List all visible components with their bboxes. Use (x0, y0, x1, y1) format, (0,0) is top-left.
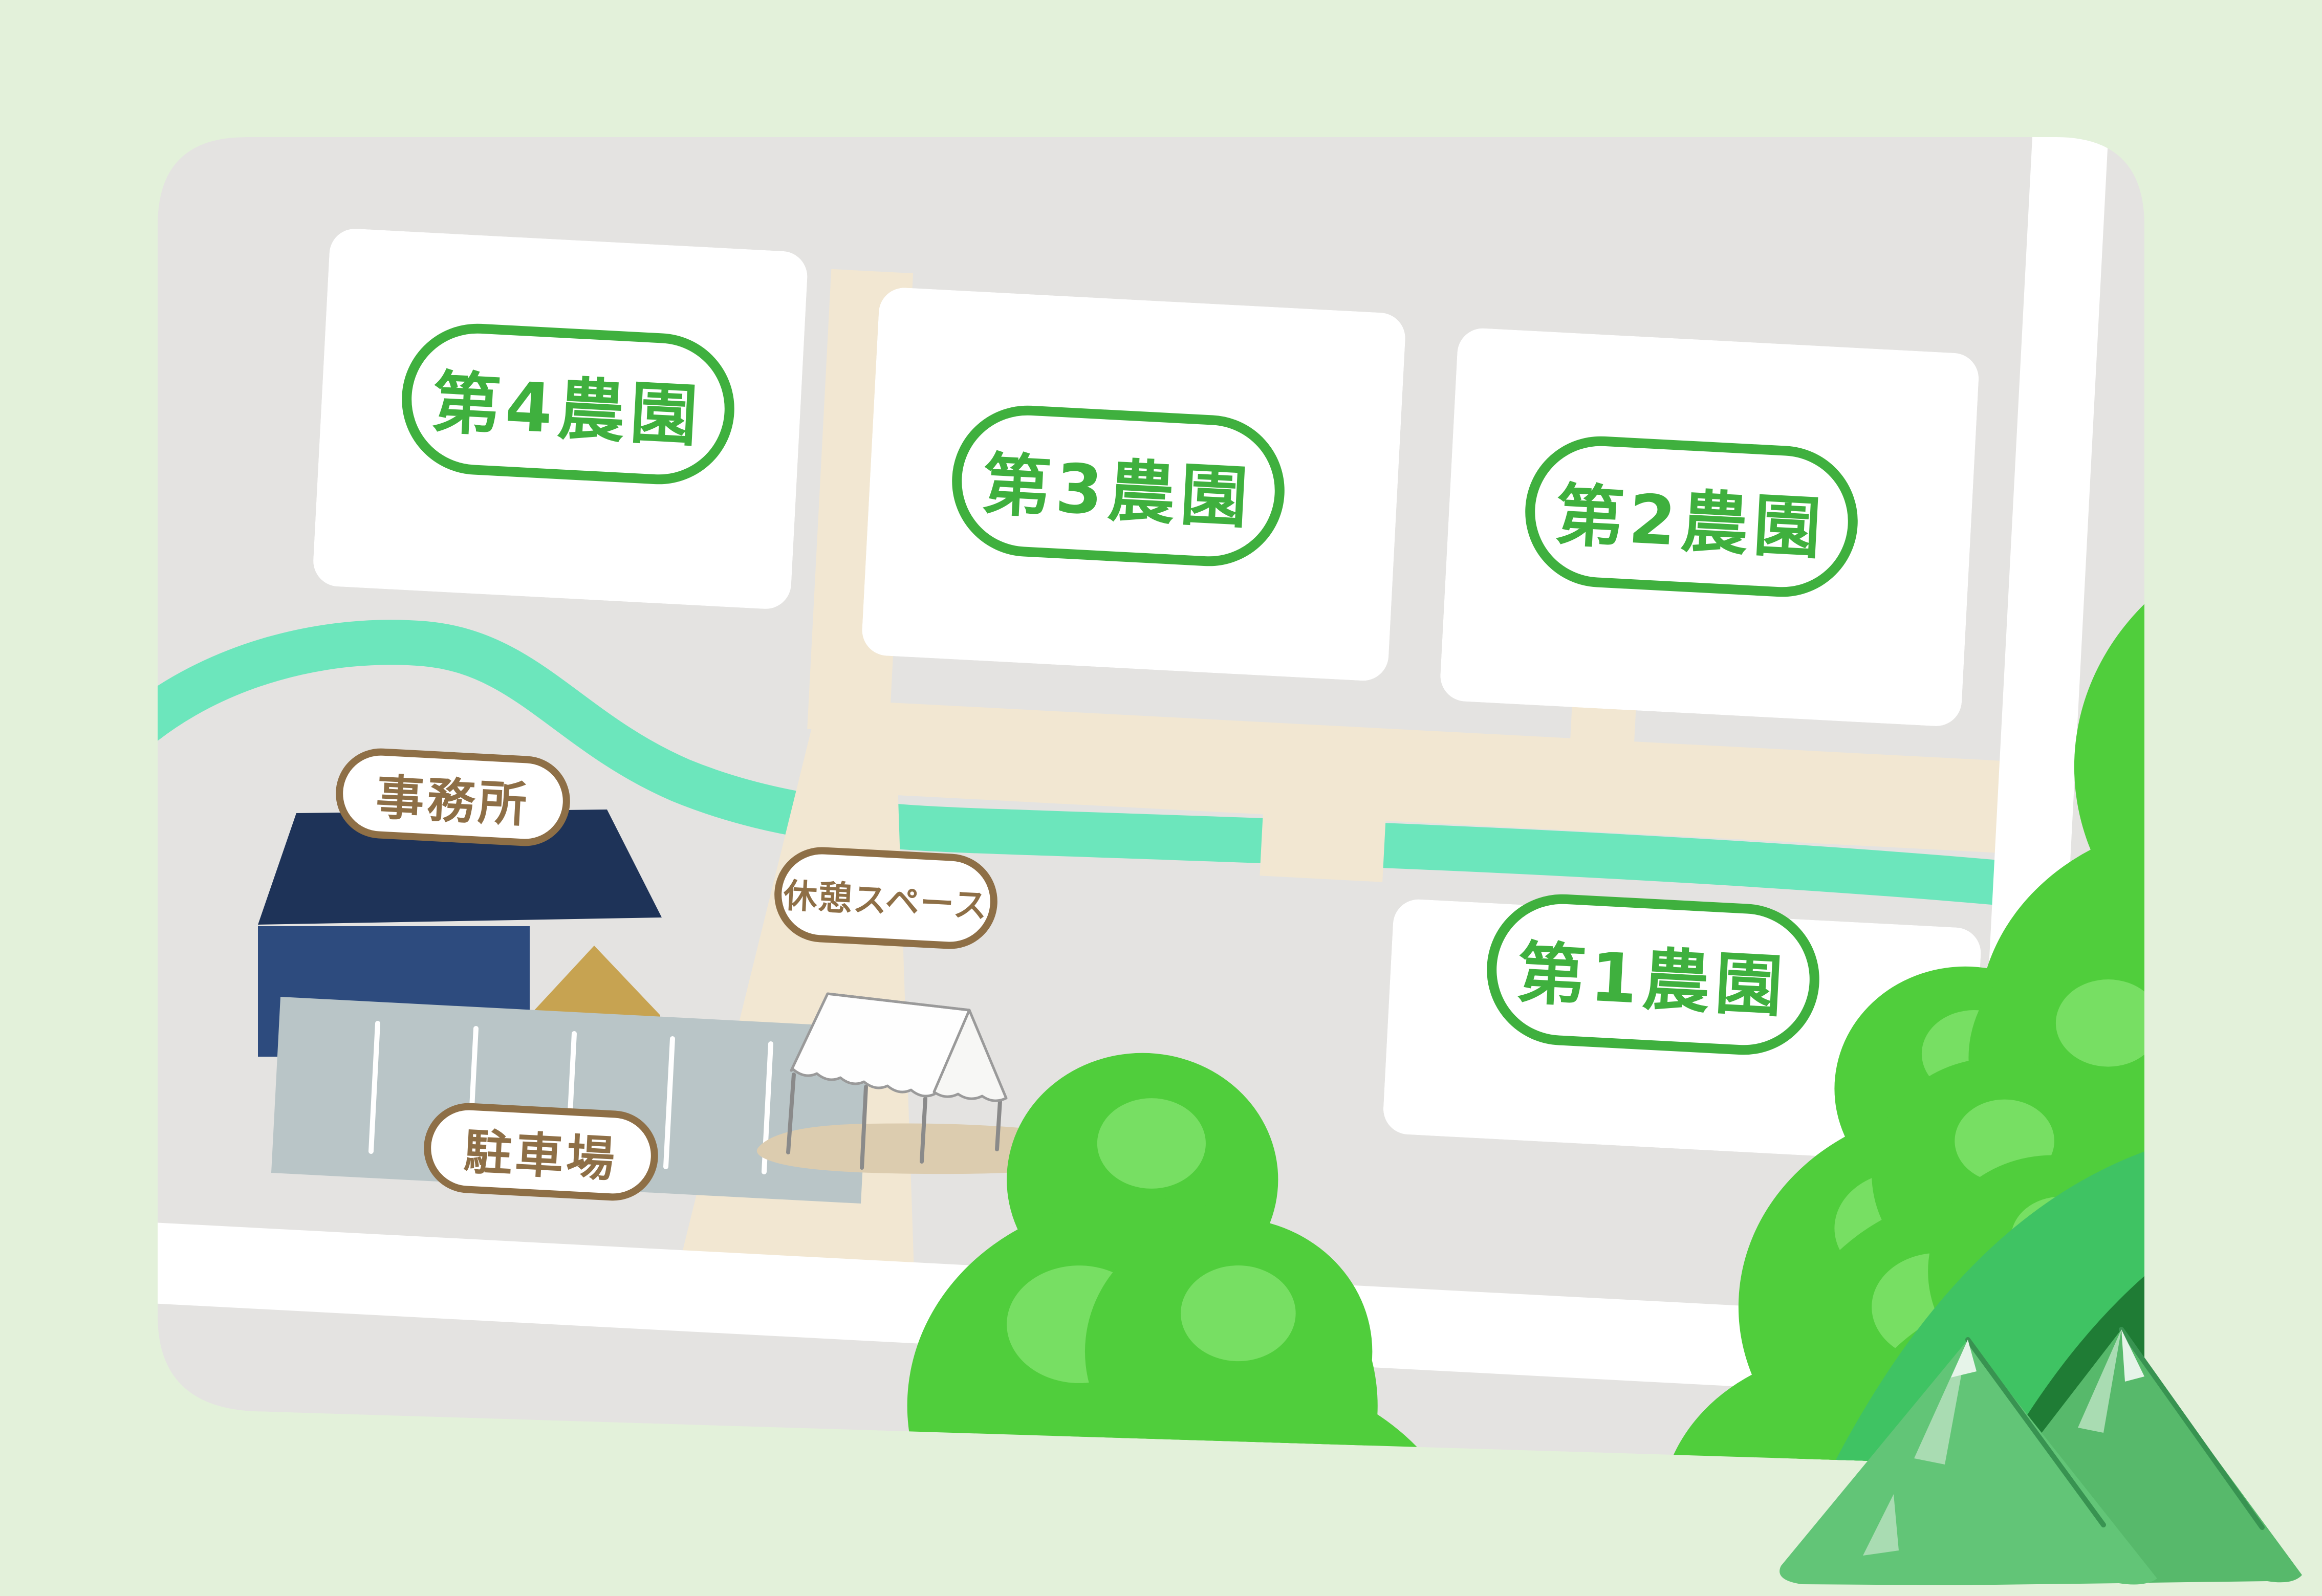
farm-map: 第4農園 第3農園 第2農園 第1農園 事務所 駐車場 休憩スペース (0, 0, 2322, 1596)
farm-3-label-text: 第3農園 (981, 430, 1255, 541)
parking-label-text: 駐車場 (463, 1113, 620, 1191)
office-label-text: 事務所 (375, 758, 532, 836)
path-stub-down (1260, 804, 1386, 882)
farm-2-label: 第2農園 (1522, 432, 1862, 601)
tree-icon (2260, 376, 2322, 1596)
farm-4-label-text: 第4農園 (430, 348, 705, 460)
farm-4-label: 第4農園 (398, 320, 739, 488)
farm-1-label: 第1農園 (1483, 890, 1824, 1059)
office-label: 事務所 (334, 746, 573, 848)
farm-2-label-text: 第2農園 (1554, 461, 1829, 572)
farm-3-label: 第3農園 (948, 402, 1289, 570)
rest-area-label-text: 休憩スペース (783, 868, 990, 928)
rest-area-label: 休憩スペース (772, 845, 1000, 952)
parking-label: 駐車場 (422, 1101, 661, 1203)
farm-1-label-text: 第1農園 (1515, 919, 1790, 1030)
